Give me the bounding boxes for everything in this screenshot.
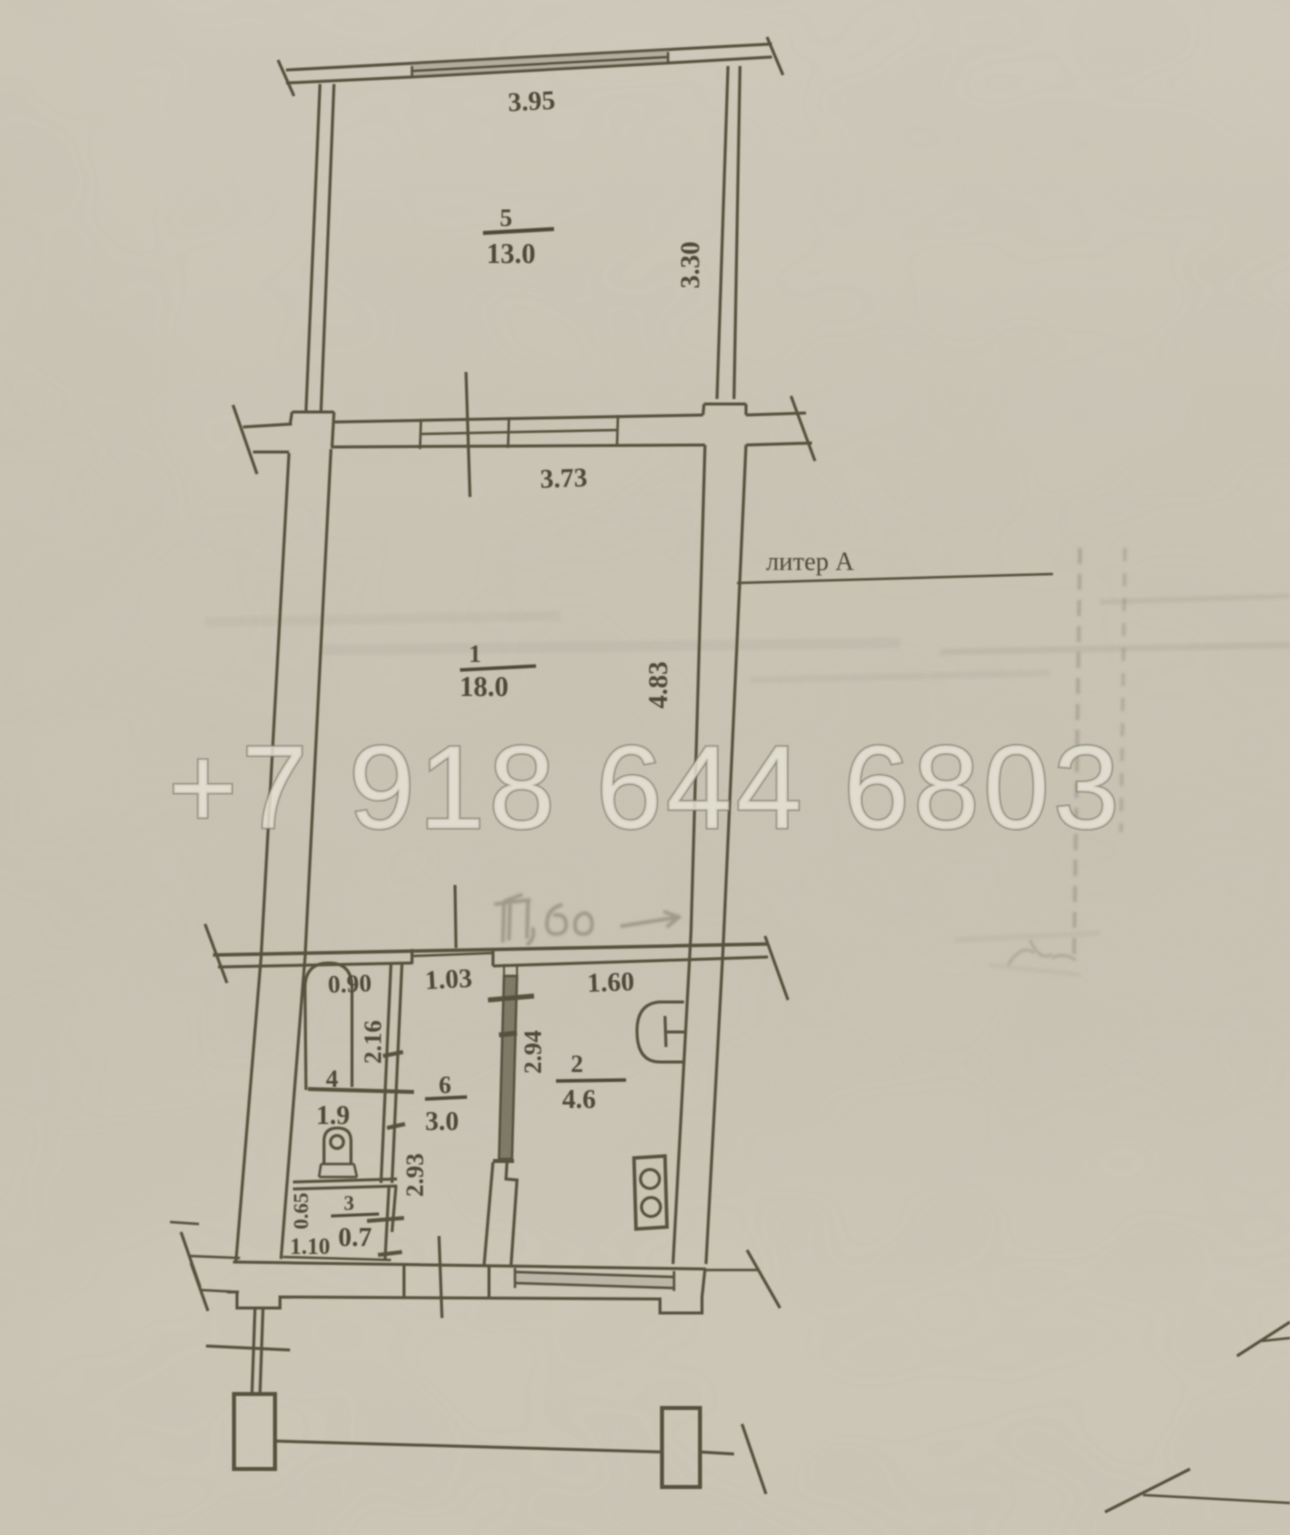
svg-text:4: 4 <box>326 1066 339 1093</box>
svg-text:2.93: 2.93 <box>402 1153 429 1197</box>
svg-text:0.7: 0.7 <box>338 1222 372 1252</box>
svg-text:2.16: 2.16 <box>360 1020 387 1064</box>
svg-text:+7 918 644 6803: +7 918 644 6803 <box>168 722 1123 854</box>
svg-text:3.73: 3.73 <box>540 462 588 494</box>
svg-text:1.03: 1.03 <box>424 963 473 995</box>
svg-text:3.95: 3.95 <box>507 85 556 117</box>
svg-text:1: 1 <box>469 641 482 668</box>
svg-text:0.65: 0.65 <box>289 1193 313 1230</box>
svg-text:2: 2 <box>571 1051 584 1078</box>
svg-text:литер А: литер А <box>766 547 854 576</box>
svg-text:13.0: 13.0 <box>487 239 536 270</box>
svg-text:3: 3 <box>344 1191 355 1215</box>
svg-text:1.60: 1.60 <box>587 966 635 998</box>
svg-text:6: 6 <box>439 1072 452 1099</box>
svg-text:1.10: 1.10 <box>290 1234 330 1259</box>
svg-text:2.94: 2.94 <box>520 1030 547 1074</box>
svg-text:4.6: 4.6 <box>562 1084 596 1114</box>
svg-text:3.30: 3.30 <box>675 241 705 288</box>
svg-text:0.90: 0.90 <box>327 970 372 999</box>
svg-text:5: 5 <box>500 205 513 232</box>
svg-text:1.9: 1.9 <box>316 1100 350 1130</box>
svg-text:3.0: 3.0 <box>425 1106 459 1136</box>
svg-text:18.0: 18.0 <box>460 672 509 703</box>
svg-text:4.83: 4.83 <box>643 661 673 708</box>
